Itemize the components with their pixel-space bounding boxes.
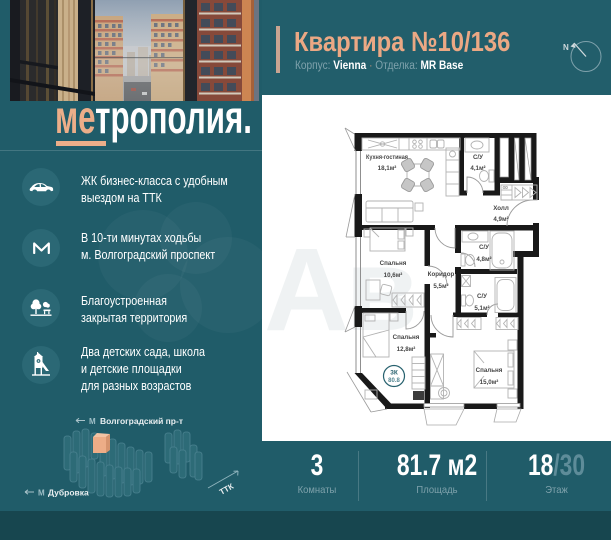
- svg-text:3К: 3К: [390, 370, 398, 377]
- svg-text:5,5м²: 5,5м²: [433, 283, 448, 290]
- svg-text:18,1м²: 18,1м²: [378, 165, 397, 172]
- svg-text:Спальня: Спальня: [380, 260, 407, 267]
- svg-text:М: М: [89, 417, 96, 426]
- svg-text:С/У: С/У: [479, 244, 489, 251]
- svg-text:Волгоградский пр-т: Волгоградский пр-т: [100, 416, 183, 426]
- svg-text:N: N: [563, 43, 569, 52]
- svg-text:ТТК: ТТК: [218, 482, 235, 497]
- svg-text:5,1м²: 5,1м²: [474, 305, 489, 312]
- svg-text:Спальня: Спальня: [393, 334, 420, 341]
- svg-text:12,8м²: 12,8м²: [397, 346, 416, 353]
- svg-text:С/У: С/У: [477, 293, 487, 300]
- svg-text:4,8м²: 4,8м²: [476, 256, 491, 263]
- svg-text:М: М: [38, 489, 45, 498]
- svg-text:Спальня: Спальня: [476, 367, 503, 374]
- svg-text:Дубровка: Дубровка: [48, 488, 89, 498]
- svg-text:4,1м²: 4,1м²: [470, 165, 485, 172]
- svg-text:10,6м²: 10,6м²: [384, 272, 403, 279]
- svg-text:С/У: С/У: [473, 154, 483, 161]
- svg-text:80.8: 80.8: [388, 378, 400, 384]
- svg-text:15,0м²: 15,0м²: [480, 379, 499, 386]
- svg-text:Холл: Холл: [493, 205, 509, 212]
- svg-text:Коридор: Коридор: [428, 271, 455, 278]
- svg-text:4,9м²: 4,9м²: [493, 216, 508, 223]
- svg-text:Кухня-гостиная: Кухня-гостиная: [366, 154, 408, 161]
